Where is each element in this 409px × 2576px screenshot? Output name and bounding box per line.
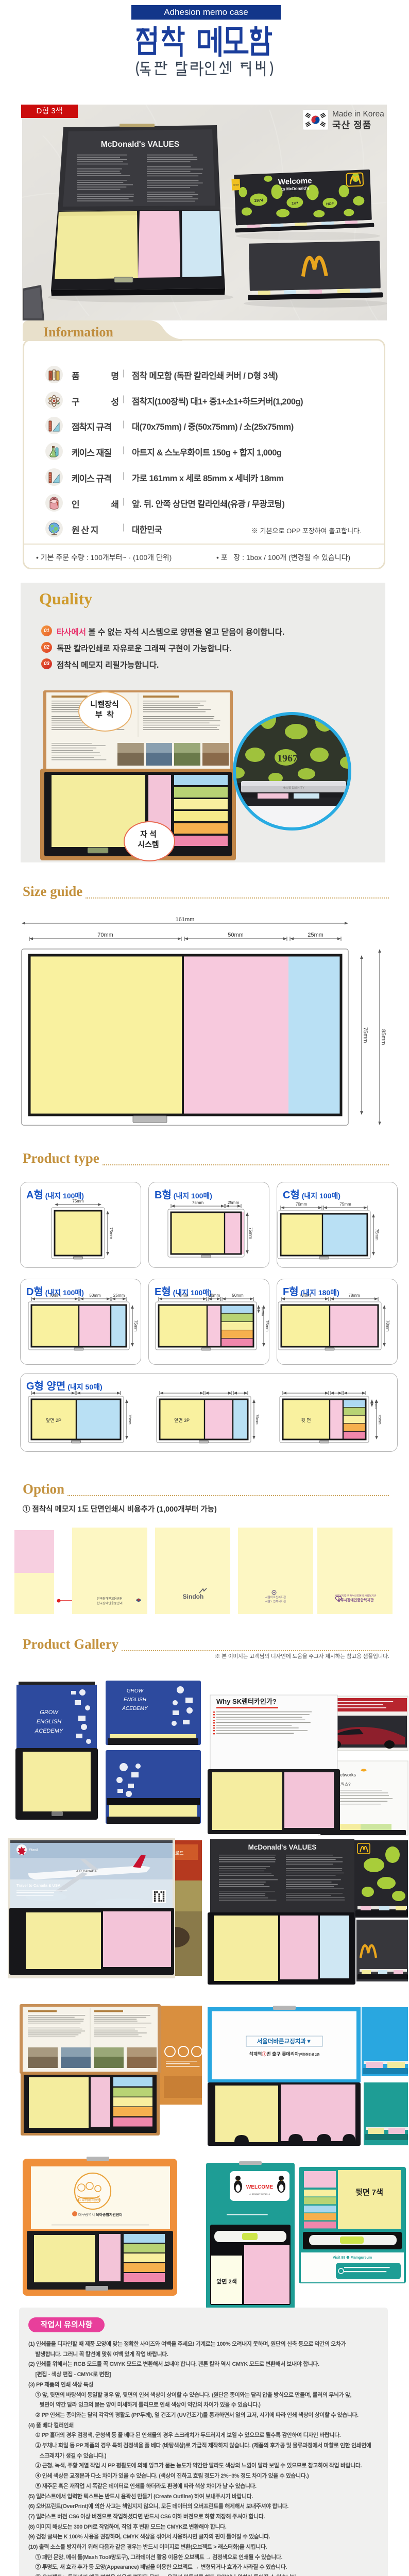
svg-text:앞면 2색: 앞면 2색	[216, 2278, 237, 2285]
svg-text:JC+ 육아종합지원센터: JC+ 육아종합지원센터	[76, 2198, 100, 2202]
svg-text:WELCOME: WELCOME	[246, 2184, 274, 2190]
svg-text:대구광역시 육아종합지원센터: 대구광역시 육아종합지원센터	[78, 2212, 123, 2217]
svg-text:★ penguin friends ★: ★ penguin friends ★	[249, 2193, 270, 2195]
svg-text:서울더바른교정치과▼: 서울더바른교정치과▼	[257, 2038, 312, 2045]
svg-text:Visit 99 ❷ Mamgureum: Visit 99 ❷ Mamgureum	[333, 2256, 372, 2260]
svg-text:뒷면 7색: 뒷면 7색	[355, 2188, 383, 2197]
